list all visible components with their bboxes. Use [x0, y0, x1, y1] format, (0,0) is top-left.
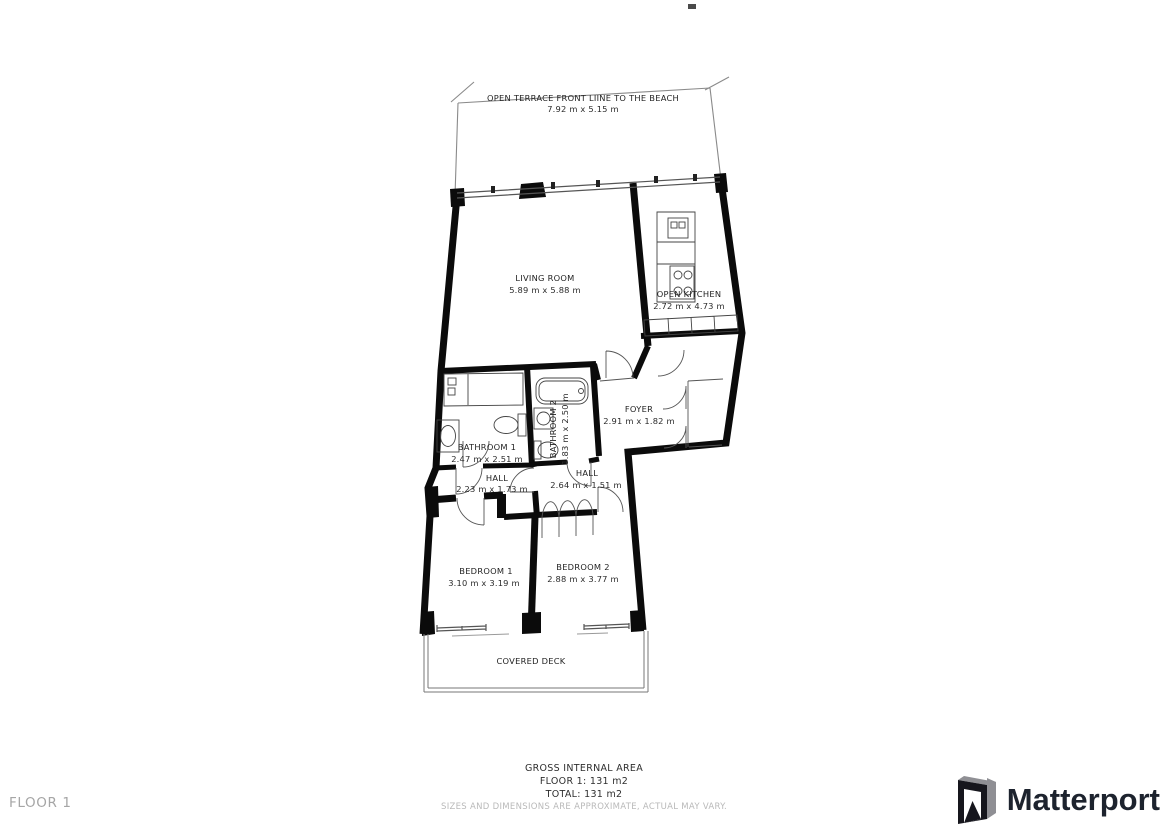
toilet2-tank [534, 441, 541, 459]
living-kitchen-divider [633, 183, 648, 346]
foyer-entry-door [658, 350, 684, 376]
bedroom2-dims: 2.88 m x 3.77 m [547, 574, 619, 584]
bedroom2-closet [542, 500, 593, 538]
top-glass-wall [457, 177, 720, 198]
terrace-label: OPEN TERRACE FRONT LIINE TO THE BEACH [487, 93, 679, 103]
hall2-label: HALL [576, 468, 598, 478]
burner [674, 271, 682, 279]
terrace-dims: 7.92 m x 5.15 m [547, 104, 619, 114]
corner-block-top-right [714, 173, 728, 193]
bathroom2-dims: 1.83 m x 2.50 m [560, 393, 570, 465]
toilet [494, 417, 518, 434]
matterport-logo-icon [958, 776, 998, 824]
matterport-branding: Matterport [958, 776, 1160, 824]
hall1-dims: 2.23 m x 1.73 m [456, 484, 528, 494]
gross-internal-area-title: GROSS INTERNAL AREA [0, 762, 1168, 775]
top-edge-mark [688, 4, 696, 9]
bedroom1-window [437, 624, 486, 632]
bathroom2-label: BATHROOM 2 [548, 400, 558, 458]
bedroom1-label: BEDROOM 1 [459, 566, 512, 576]
hall1-bedroom1-wall [430, 495, 503, 500]
bathroom1-label: BATHROOM 1 [458, 442, 516, 452]
foyer-label: FOYER [625, 404, 653, 414]
floor-plan-svg: OPEN TERRACE FRONT LIINE TO THE BEACH 7.… [0, 0, 1168, 824]
outer-wall-left [423, 196, 457, 634]
corner-block-bottom-center [522, 612, 541, 634]
bedroom2-door [598, 487, 623, 512]
foyer-closet-frame [688, 379, 723, 447]
hall1-left-jog [427, 486, 439, 518]
bedroom1-dims: 3.10 m x 3.19 m [448, 578, 520, 588]
burner [684, 271, 692, 279]
corner-block-bottom-left [421, 611, 435, 636]
sink [441, 426, 456, 447]
kitchen-fixtures [644, 212, 738, 336]
bedroom1-top-jog [497, 494, 506, 518]
bedroom2-label: BEDROOM 2 [556, 562, 609, 572]
tub-faucet [579, 389, 584, 394]
foyer-dims: 2.91 m x 1.82 m [603, 416, 675, 426]
bedroom1-door [457, 498, 484, 525]
floorplan-page: OPEN TERRACE FRONT LIINE TO THE BEACH 7.… [0, 0, 1168, 824]
living-room-label: LIVING ROOM [515, 273, 574, 283]
open-kitchen-dims: 2.72 m x 4.73 m [653, 301, 725, 311]
hall-divider-wall [533, 462, 537, 517]
foyer-diagonal-wall [634, 346, 648, 378]
covered-deck-label: COVERED DECK [497, 656, 566, 666]
bedroom2-window [584, 623, 629, 630]
corner-block-bottom-right [630, 610, 644, 632]
hall1-label: HALL [486, 473, 508, 483]
living-room-dims: 5.89 m x 5.88 m [509, 285, 581, 295]
glass-wall-pillar [519, 182, 546, 199]
toilet-tank [518, 414, 526, 436]
living-foyer-door [600, 351, 634, 381]
hall2-bedroom2-wall [504, 512, 597, 517]
floor-selector-label[interactable]: FLOOR 1 [9, 795, 72, 811]
hall2-dims: 2.64 m x 1.51 m [550, 480, 622, 490]
open-kitchen-label: OPEN KITCHEN [657, 289, 722, 299]
matterport-wordmark: Matterport [1007, 782, 1160, 818]
bathroom1-dims: 2.47 m x 2.51 m [451, 454, 523, 464]
